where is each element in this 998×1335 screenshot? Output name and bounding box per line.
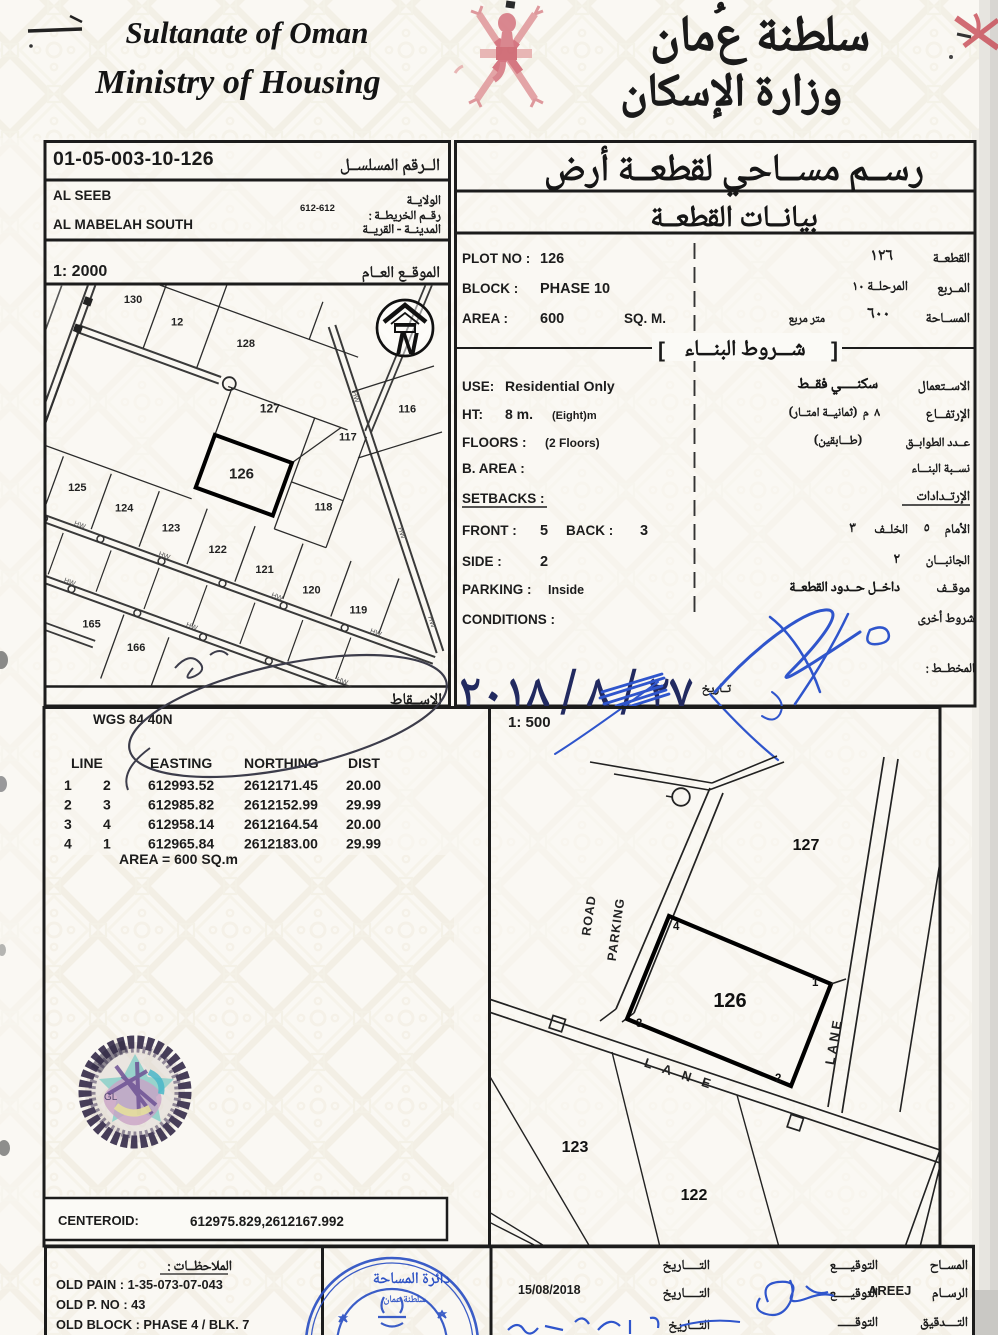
- svg-text:15/08/2018: 15/08/2018: [518, 1283, 581, 1297]
- svg-text:2: 2: [103, 777, 111, 793]
- svg-text:612958.14: 612958.14: [148, 816, 214, 832]
- svg-text:3: 3: [103, 797, 111, 813]
- svg-text:1: 1: [64, 777, 72, 793]
- svg-text:NORTHING: NORTHING: [244, 755, 319, 771]
- svg-text:29.99: 29.99: [346, 797, 381, 813]
- svg-text:OLD BLOCK : PHASE 4 / BLK. 7: OLD BLOCK : PHASE 4 / BLK. 7: [56, 1317, 249, 1332]
- svg-text:1: 1: [812, 977, 819, 989]
- svg-text:122: 122: [209, 544, 227, 556]
- svg-text:121: 121: [255, 564, 273, 576]
- svg-text:LINE: LINE: [71, 755, 103, 771]
- svg-text:OLD PAIN : 1-35-073-07-043: OLD PAIN : 1-35-073-07-043: [56, 1277, 223, 1292]
- svg-text:PHASE 10: PHASE 10: [540, 281, 610, 297]
- svg-text:3: 3: [636, 1018, 642, 1030]
- svg-text:2: 2: [775, 1073, 781, 1085]
- svg-text:612-612: 612-612: [300, 203, 335, 214]
- svg-text:2612183.00: 2612183.00: [244, 836, 318, 852]
- svg-text:166: 166: [127, 642, 145, 654]
- svg-text:N: N: [396, 326, 419, 361]
- svg-text:612965.84: 612965.84: [148, 836, 214, 852]
- svg-text:2: 2: [540, 554, 548, 570]
- svg-text:126: 126: [713, 990, 746, 1012]
- svg-text:B. AREA :: B. AREA :: [462, 461, 525, 476]
- svg-text:116: 116: [398, 403, 416, 415]
- svg-text:AREA = 600 SQ.m: AREA = 600 SQ.m: [119, 851, 238, 867]
- svg-text:PARKING :: PARKING :: [462, 582, 532, 597]
- svg-text:GL: GL: [104, 1092, 118, 1103]
- svg-text:4: 4: [673, 921, 680, 933]
- svg-text:8 m.: 8 m.: [505, 406, 533, 422]
- svg-text:AL SEEB: AL SEEB: [53, 188, 112, 203]
- svg-text:FLOORS :: FLOORS :: [462, 435, 527, 450]
- svg-text:12: 12: [171, 316, 183, 328]
- svg-text:BACK :: BACK :: [566, 523, 613, 538]
- svg-text:BLOCK :: BLOCK :: [462, 281, 518, 296]
- svg-text:Sultanate of Oman: Sultanate of Oman: [126, 15, 369, 50]
- svg-text:2612152.99: 2612152.99: [244, 797, 318, 813]
- svg-text:123: 123: [562, 1139, 589, 1156]
- svg-text:126: 126: [229, 466, 254, 483]
- svg-text:125: 125: [68, 482, 86, 494]
- svg-text:3: 3: [640, 523, 648, 539]
- svg-text:SQ. M.: SQ. M.: [624, 311, 666, 326]
- svg-text:HT:: HT:: [462, 407, 483, 422]
- svg-text:DIST: DIST: [348, 755, 380, 771]
- svg-text:(Eight)m: (Eight)m: [552, 410, 597, 422]
- svg-text:WGS 84 40N: WGS 84 40N: [93, 712, 173, 727]
- svg-text:2612164.54: 2612164.54: [244, 816, 318, 832]
- svg-text:165: 165: [82, 618, 100, 630]
- svg-text:128: 128: [237, 338, 255, 350]
- svg-text:CONDITIONS :: CONDITIONS :: [462, 612, 555, 627]
- svg-text:Residential Only: Residential Only: [505, 378, 615, 394]
- svg-text:Ministry of Housing: Ministry of Housing: [94, 64, 380, 101]
- svg-text:AREEJ: AREEJ: [868, 1283, 911, 1298]
- svg-text:SIDE :: SIDE :: [462, 554, 502, 569]
- svg-text:5: 5: [540, 523, 548, 539]
- svg-text:AL MABELAH SOUTH: AL MABELAH SOUTH: [53, 217, 193, 232]
- svg-text:612975.829,2612167.992: 612975.829,2612167.992: [190, 1214, 344, 1229]
- svg-text:1: 500: 1: 500: [508, 714, 551, 731]
- svg-text:1: 1: [103, 836, 111, 852]
- svg-text:4: 4: [103, 816, 111, 832]
- svg-text:123: 123: [162, 523, 180, 535]
- svg-text:AREA :: AREA :: [462, 311, 508, 326]
- svg-text:20.00: 20.00: [346, 777, 381, 793]
- svg-text:4: 4: [64, 836, 72, 852]
- svg-text:120: 120: [302, 585, 320, 597]
- svg-text:USE:: USE:: [462, 379, 494, 394]
- svg-text:[: [: [658, 339, 665, 362]
- svg-text:20.00: 20.00: [346, 816, 381, 832]
- svg-text:612993.52: 612993.52: [148, 777, 214, 793]
- svg-text:2: 2: [64, 797, 72, 813]
- svg-text:126: 126: [540, 251, 564, 267]
- svg-text:Inside: Inside: [548, 583, 584, 597]
- svg-text:117: 117: [339, 432, 357, 444]
- svg-text:127: 127: [793, 837, 820, 854]
- svg-text:130: 130: [124, 294, 142, 306]
- svg-text:]: ]: [831, 339, 838, 362]
- svg-text:612985.82: 612985.82: [148, 797, 214, 813]
- svg-text:(2 Floors): (2 Floors): [545, 436, 600, 450]
- svg-text:119: 119: [350, 605, 368, 617]
- svg-text:122: 122: [681, 1187, 708, 1204]
- svg-text:FRONT :: FRONT :: [462, 523, 517, 538]
- svg-text:CENTEROID:: CENTEROID:: [58, 1213, 139, 1228]
- svg-text:118: 118: [315, 502, 333, 514]
- svg-text:PLOT NO :: PLOT NO :: [462, 251, 530, 266]
- svg-text:124: 124: [115, 503, 134, 515]
- svg-text:EASTING: EASTING: [150, 755, 212, 771]
- svg-text:2612171.45: 2612171.45: [244, 777, 318, 793]
- svg-text:600: 600: [540, 311, 564, 327]
- svg-text:1: 2000: 1: 2000: [53, 263, 107, 280]
- svg-text:127: 127: [260, 401, 280, 415]
- svg-text:29.99: 29.99: [346, 836, 381, 852]
- svg-text:SETBACKS :: SETBACKS :: [462, 491, 545, 506]
- svg-text:01-05-003-10-126: 01-05-003-10-126: [53, 148, 214, 170]
- svg-text:OLD P. NO : 43: OLD P. NO : 43: [56, 1297, 145, 1312]
- svg-text:3: 3: [64, 816, 72, 832]
